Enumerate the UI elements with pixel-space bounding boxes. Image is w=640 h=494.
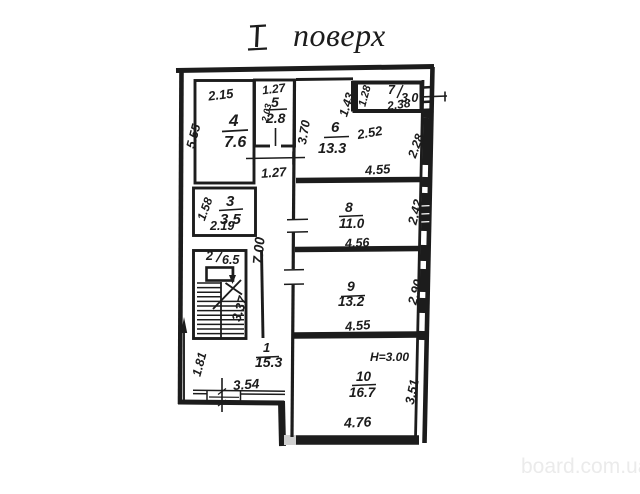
svg-text:11.0: 11.0 [339, 216, 365, 231]
svg-text:9: 9 [347, 278, 355, 294]
svg-text:1.27: 1.27 [261, 164, 288, 181]
svg-text:4: 4 [228, 111, 239, 130]
svg-text:7.00: 7.00 [249, 236, 267, 265]
svg-text:2: 2 [205, 249, 213, 263]
svg-text:13.3: 13.3 [318, 141, 346, 157]
svg-text:3.54: 3.54 [233, 376, 261, 393]
svg-text:4.55: 4.55 [343, 317, 371, 334]
svg-text:6: 6 [331, 119, 340, 136]
svg-text:4.55: 4.55 [364, 161, 392, 178]
svg-text:H=3.00: H=3.00 [370, 350, 409, 364]
svg-text:16.7: 16.7 [349, 385, 377, 400]
svg-text:board.com.ua: board.com.ua [521, 455, 640, 478]
svg-text:7.6: 7.6 [224, 134, 246, 151]
svg-text:10: 10 [356, 369, 372, 384]
svg-text:6.5: 6.5 [222, 253, 240, 267]
svg-text:3: 3 [226, 193, 235, 210]
svg-text:13.2: 13.2 [338, 294, 365, 309]
svg-text:4.56: 4.56 [344, 235, 371, 250]
svg-text:1: 1 [263, 340, 270, 355]
svg-text:поверх: поверх [293, 17, 386, 53]
svg-text:4.76: 4.76 [343, 413, 372, 430]
svg-text:7: 7 [388, 83, 396, 97]
svg-text:8: 8 [345, 199, 353, 215]
svg-text:15.3: 15.3 [255, 354, 282, 370]
svg-text:2.19: 2.19 [209, 219, 234, 233]
